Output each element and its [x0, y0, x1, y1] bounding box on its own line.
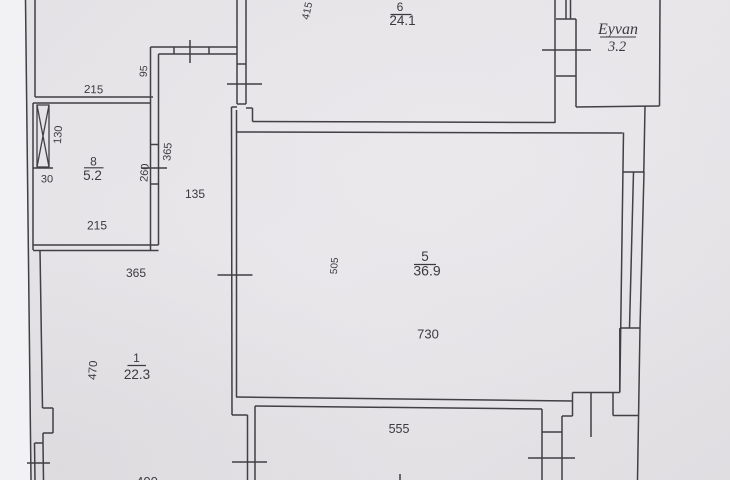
svg-text:130: 130 — [52, 125, 65, 144]
svg-text:8: 8 — [90, 155, 97, 169]
svg-text:365: 365 — [161, 142, 174, 161]
svg-text:95: 95 — [138, 65, 151, 78]
svg-text:365: 365 — [126, 266, 146, 280]
svg-text:36.9: 36.9 — [413, 263, 440, 279]
svg-text:215: 215 — [87, 219, 107, 233]
svg-text:215: 215 — [84, 84, 103, 96]
svg-text:22.3: 22.3 — [124, 367, 150, 382]
svg-text:Eyvan: Eyvan — [597, 21, 638, 38]
svg-text:730: 730 — [417, 327, 439, 342]
svg-text:505: 505 — [329, 257, 341, 275]
svg-text:1: 1 — [133, 351, 140, 365]
svg-text:30: 30 — [41, 174, 53, 186]
svg-text:400: 400 — [136, 474, 158, 480]
svg-text:5.2: 5.2 — [83, 168, 102, 183]
svg-text:555: 555 — [389, 422, 410, 436]
svg-text:470: 470 — [87, 360, 100, 380]
svg-text:3.2: 3.2 — [607, 39, 626, 55]
svg-text:6: 6 — [397, 0, 404, 14]
svg-text:260: 260 — [138, 163, 151, 182]
svg-text:24.1: 24.1 — [389, 13, 415, 28]
svg-text:135: 135 — [185, 187, 205, 201]
